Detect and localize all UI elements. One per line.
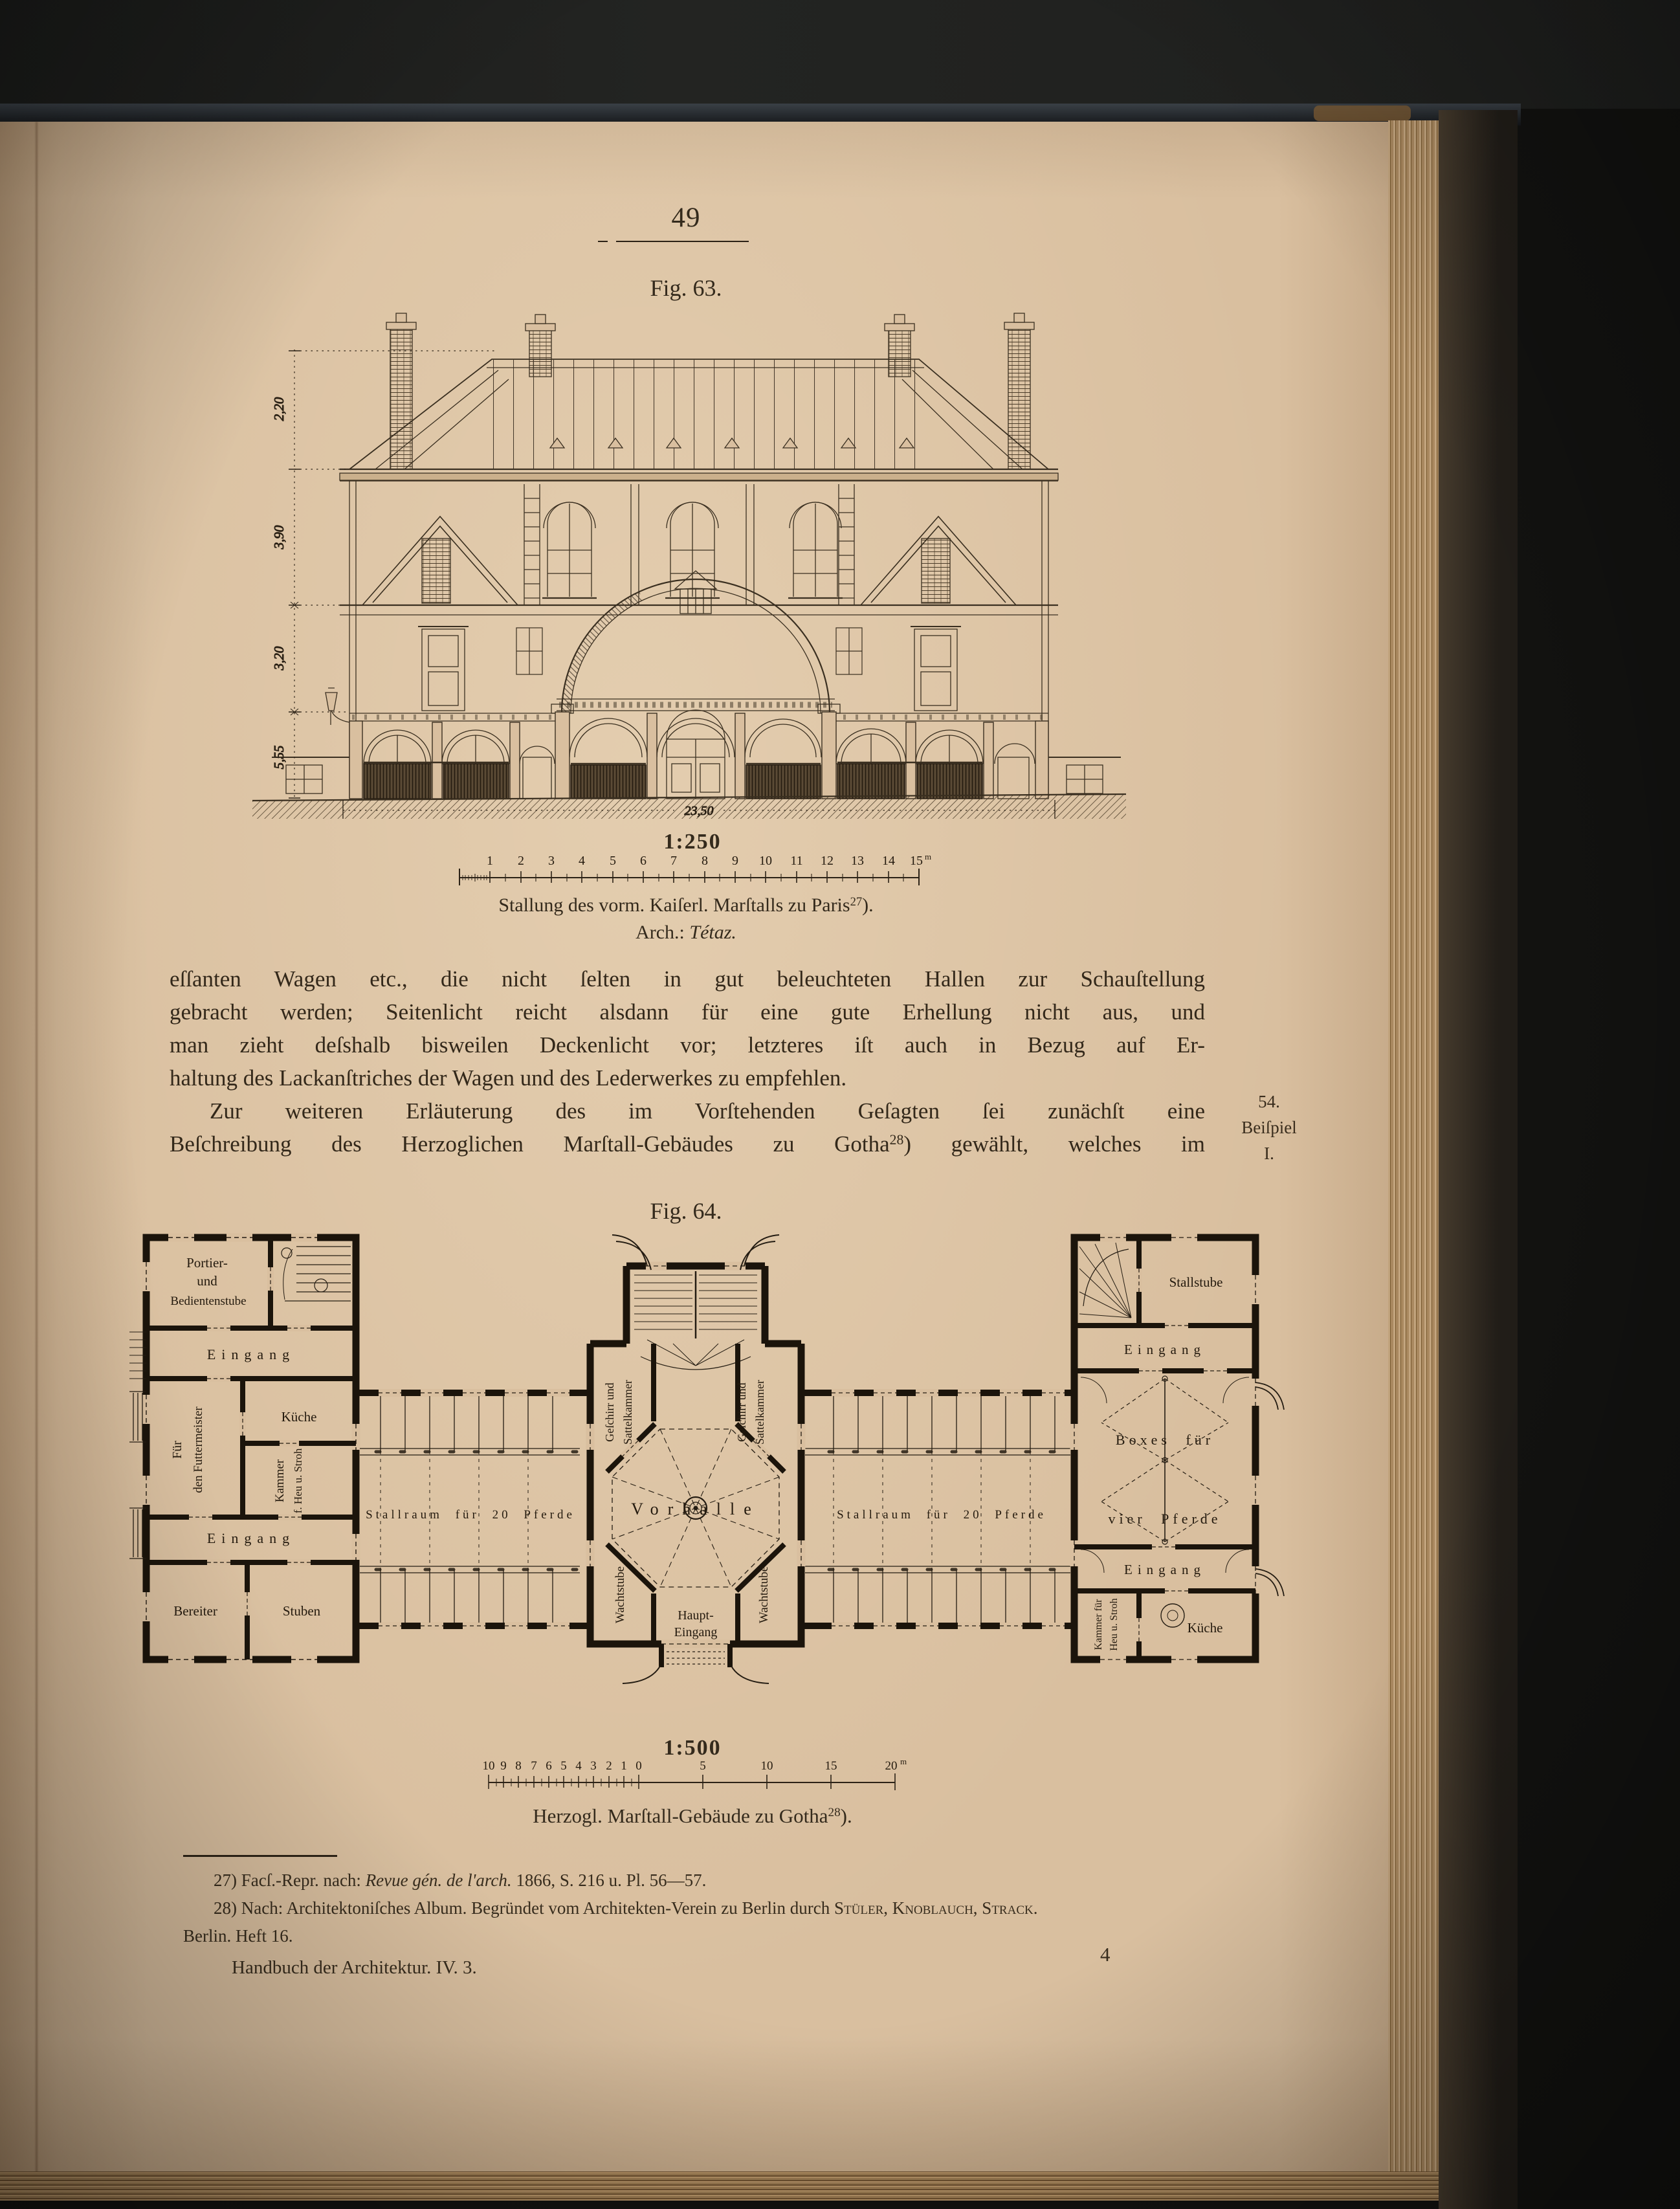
dim-middle-label: 3,20: [271, 646, 287, 671]
body-line-6a: Beſchreibung des Herzoglichen Marſtall-G…: [170, 1131, 890, 1157]
stall-fronts: [364, 764, 982, 799]
room-stallraum-left: Stallraum für 20 Pferde: [366, 1508, 575, 1522]
mid-window-right: [836, 628, 862, 674]
room-geschirr-left-2: Sattelkammer: [621, 1380, 634, 1445]
roof-lantern: [675, 571, 716, 614]
ruler63-unit: m: [925, 852, 931, 861]
room-geschirr-right-1: Geſchirr und: [735, 1382, 748, 1441]
fig63-label: Fig. 63.: [557, 274, 815, 302]
ruler63-15: 15: [910, 854, 923, 868]
fig64-label: Fig. 64.: [557, 1197, 815, 1225]
room-futtermeister: den Futtermeister: [192, 1406, 205, 1493]
plan-right-pavilion: [1074, 1238, 1284, 1660]
ruler64-l6: 6: [546, 1759, 552, 1773]
room-stallstube: Stallstube: [1169, 1274, 1223, 1290]
room-kammer-left-2: f. Heu u. Stroh: [292, 1448, 304, 1513]
main-cornice: [340, 469, 1058, 481]
fig63-caption-end: ).: [862, 894, 874, 916]
ruler63-5: 5: [610, 854, 616, 868]
ruler64-r5: 5: [700, 1759, 706, 1773]
dim-upper-label: 3,90: [271, 525, 287, 549]
ruler64-l3: 3: [590, 1759, 597, 1773]
footnote-27-a: 27) Facſ.-Repr. nach:: [214, 1870, 366, 1890]
fig63-scale-ruler: 1 2 3 4 5 6 7 8 9 10 11 12 13 14 15 m: [447, 852, 932, 891]
room-boxes-1: Boxes für: [1116, 1432, 1214, 1448]
upper-window-3: [788, 502, 843, 598]
dim-width-label: 23,50: [685, 804, 714, 818]
ruler64-l5: 5: [560, 1759, 567, 1773]
wall-lamp: [326, 688, 349, 725]
upper-window-1: [542, 502, 597, 598]
body-line-6b: ) gewählt, welches im: [903, 1131, 1205, 1157]
ruler63-6: 6: [640, 854, 647, 868]
page-stack-bottom: [0, 2171, 1439, 2201]
body-line-6-footref: 28: [890, 1132, 904, 1148]
room-portier-3: Bedientenstube: [170, 1294, 246, 1308]
ruler64-l4: 4: [575, 1759, 582, 1773]
background-top: [0, 0, 1680, 109]
room-geschirr-right-2: Sattelkammer: [753, 1380, 766, 1445]
ruler63-8: 8: [702, 854, 708, 868]
body-line-5: Zur weiteren Erläuterung des im Vorſtehe…: [170, 1094, 1205, 1127]
margin-note: 54. Beiſpiel I.: [1227, 1089, 1311, 1166]
fig63-architect: Arch.: Tétaz.: [194, 922, 1178, 944]
ruler64-r15: 15: [825, 1759, 837, 1773]
fig64-caption-end: ).: [841, 1804, 852, 1827]
room-eingang-right-2: Eingang: [1124, 1562, 1206, 1577]
room-fuer: Für: [170, 1441, 184, 1459]
ruler63-10: 10: [759, 854, 772, 868]
dim-roof-label: 2,20: [271, 397, 287, 421]
quoins-right: [839, 484, 854, 605]
footnote-27-b: 1866, S. 216 u. Pl. 56—57.: [512, 1870, 707, 1890]
room-vorhalle: Vorhalle: [631, 1500, 760, 1518]
page-number-rule: [616, 241, 749, 242]
roof: [349, 359, 1048, 469]
ruler64-l7: 7: [531, 1759, 537, 1773]
fig64-floorplan-drawing: Portier- und Bedientenstube Eingang Küch…: [129, 1230, 1288, 1689]
ruler64-r20: 20: [885, 1759, 898, 1773]
ruler64-l9: 9: [500, 1759, 507, 1773]
ruler63-13: 13: [851, 854, 864, 868]
room-bereiter: Bereiter: [173, 1603, 217, 1619]
fig63-arch-name: Tétaz.: [689, 922, 736, 943]
body-paragraph: eſſanten Wagen etc., die nicht ſelten in…: [170, 962, 1205, 1160]
room-haupt-2: Eingang: [674, 1625, 718, 1639]
footnote-28-names: Stüler, Knoblauch, Strack: [834, 1898, 1033, 1918]
fig63-caption: Stallung des vorm. Kaiſerl. Marſtalls zu…: [194, 894, 1178, 916]
footer-imprint: Handbuch der Architektur. IV. 3.: [232, 1957, 477, 1979]
footnote-27-title: Revue gén. de l'arch.: [366, 1870, 512, 1890]
fig63-elevation-drawing: 2,20 3,90 3,20 5,55 23,50: [252, 311, 1126, 819]
fig64-scale-ruler: 10 9 8 7 6 5 4 3 2 1 0 5 10 15 20 m: [476, 1757, 916, 1795]
body-line-2: gebracht werden; Seitenlicht reicht alsd…: [170, 995, 1205, 1028]
footnote-28-a: 28) Nach: Architektoniſches Album. Begrü…: [214, 1898, 834, 1918]
room-eingang-left-2: Eingang: [207, 1530, 295, 1546]
mid-door-left: [418, 627, 469, 711]
book-cover-right: [1439, 110, 1518, 2209]
ruler64-unit: m: [900, 1757, 907, 1766]
ruler63-3: 3: [548, 854, 555, 868]
page-number-rule-dash: [598, 241, 608, 242]
side-door-left: [523, 757, 551, 799]
ruler64-l10: 10: [483, 1759, 495, 1773]
fig64-caption: Herzogl. Marſtall-Gebäude zu Gotha28).: [194, 1804, 1191, 1828]
footnote-28-b: .: [1033, 1898, 1038, 1918]
fig63-scale-title: 1:250: [582, 830, 802, 854]
elevation-linework: [252, 313, 1126, 819]
mid-window-left: [516, 628, 542, 674]
ruler63-4: 4: [579, 854, 585, 868]
ruler63-2: 2: [518, 854, 524, 868]
room-geschirr-left-1: Geſchirr und: [603, 1382, 616, 1441]
room-stallraum-right: Stallraum für 20 Pferde: [837, 1508, 1046, 1522]
ruler64-l0: 0: [636, 1759, 642, 1773]
side-door-right: [998, 757, 1029, 799]
ruler64-l8: 8: [515, 1759, 522, 1773]
fig63-arch-label: Arch.:: [636, 922, 689, 943]
page-number: 49: [557, 202, 815, 234]
book-photo: 49 Fig. 63.: [0, 0, 1680, 2209]
ruler63-1: 1: [487, 854, 493, 868]
fig64-caption-footref: 28: [828, 1806, 840, 1819]
ruler63-14: 14: [882, 854, 895, 868]
ruler63-11: 11: [790, 854, 802, 868]
mid-door-right: [911, 627, 961, 711]
dim-ground-label: 5,55: [271, 746, 287, 770]
room-kammer-left-1: Kammer: [273, 1459, 287, 1502]
page-stack-right: [1388, 120, 1439, 2199]
ruler63-7: 7: [670, 854, 677, 868]
margin-note-word: Beiſpiel: [1227, 1115, 1311, 1140]
ruler63-12: 12: [821, 854, 834, 868]
footnote-28: 28) Nach: Architektoniſches Album. Begrü…: [183, 1898, 1262, 1918]
room-kueche-right: Küche: [1188, 1620, 1223, 1636]
body-line-3: man zieht deſshalb bisweilen Deckenlicht…: [170, 1028, 1205, 1061]
footnote-27: 27) Facſ.-Repr. nach: Revue gén. de l'ar…: [183, 1870, 1249, 1891]
room-portier-1: Portier-: [186, 1255, 228, 1271]
quoins-left: [524, 484, 540, 605]
sheet-signature: 4: [1100, 1943, 1111, 1966]
margin-note-roman: I.: [1227, 1140, 1311, 1166]
room-portier-2: und: [197, 1273, 217, 1289]
footnote-28-continuation: Berlin. Heft 16.: [183, 1926, 293, 1946]
room-stuben: Stuben: [283, 1603, 321, 1619]
ruler64-l2: 2: [606, 1759, 612, 1773]
ruler63-9: 9: [732, 854, 738, 868]
fig63-caption-footref: 27: [850, 895, 863, 909]
margin-note-number: 54.: [1227, 1089, 1311, 1115]
ruler64-r10: 10: [761, 1759, 773, 1773]
ruler64-l1: 1: [621, 1759, 627, 1773]
page-gutter-crease: [36, 122, 38, 2175]
body-line-6: Beſchreibung des Herzoglichen Marſtall-G…: [170, 1127, 1205, 1160]
pediment-chimney-left: [422, 538, 450, 603]
room-haupt-1: Haupt-: [678, 1608, 714, 1623]
fig63-caption-text: Stallung des vorm. Kaiſerl. Marſtalls zu…: [498, 894, 850, 916]
room-wachtstube-right: Wachtstube: [757, 1566, 771, 1623]
fig64-caption-text: Herzogl. Marſtall-Gebäude zu Gotha: [533, 1804, 828, 1827]
room-eingang-right-1: Eingang: [1124, 1342, 1206, 1357]
pediment-chimney-right: [922, 538, 950, 603]
room-wachtstube-left: Wachtstube: [613, 1566, 627, 1623]
cover-wear-spot: [1314, 105, 1411, 121]
room-kueche-left: Küche: [282, 1409, 317, 1425]
room-kammer-right-2: Heu u. Stroh: [1109, 1598, 1120, 1650]
room-boxes-2: vier Pferde: [1108, 1511, 1221, 1527]
room-kammer-right-1: Kammer für: [1093, 1599, 1104, 1650]
arch-shading: [562, 592, 643, 713]
room-eingang-left-1: Eingang: [207, 1346, 295, 1362]
body-line-1: eſſanten Wagen etc., die nicht ſelten in…: [170, 962, 1205, 995]
outer-walls: [349, 481, 1048, 798]
upper-window-2: [665, 502, 720, 598]
body-line-4: haltung des Lackanſtriches der Wagen und…: [170, 1061, 1205, 1094]
footnote-rule: [183, 1855, 337, 1857]
